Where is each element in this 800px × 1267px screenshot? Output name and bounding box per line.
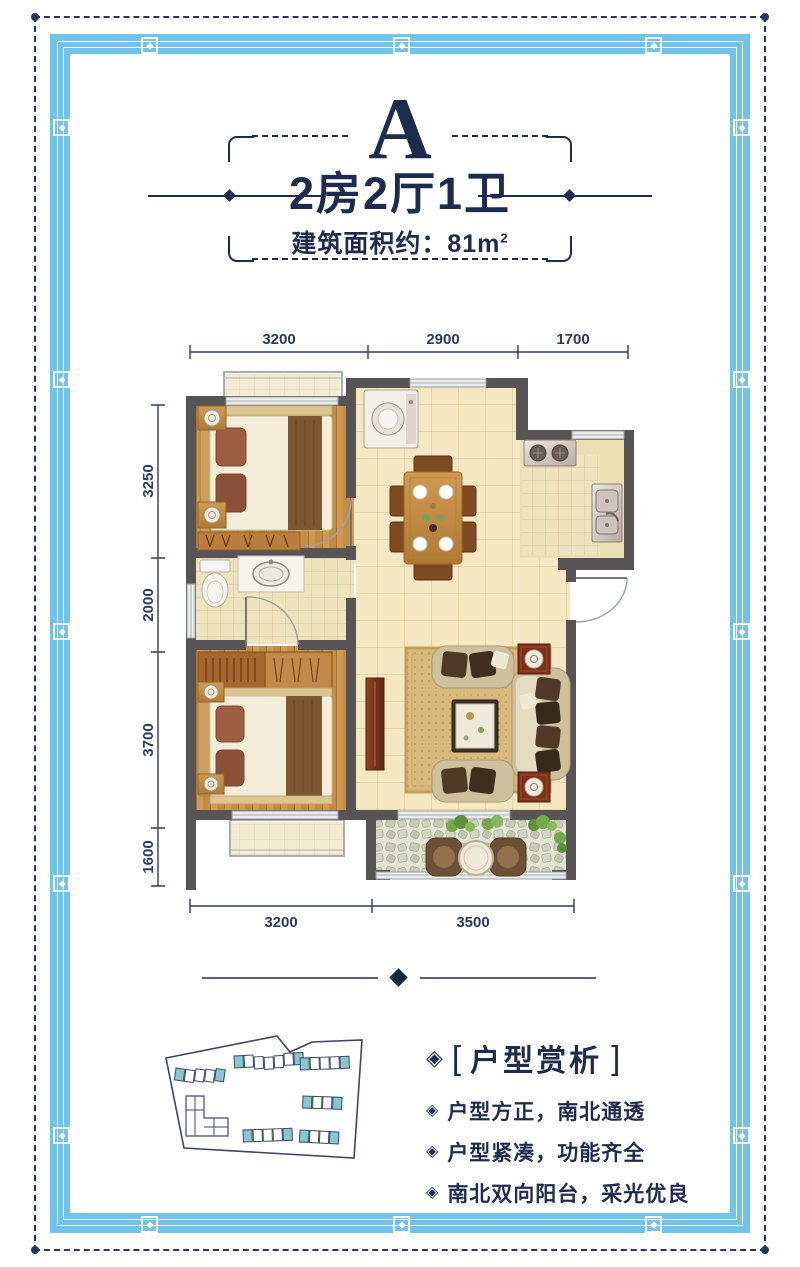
dimension-left: 3250 2000 3700 1600 [140,405,165,886]
sofa-top [432,646,514,688]
border-ornament [645,37,662,54]
plan-letter: A [0,90,800,170]
bedroom-2 [198,652,332,804]
border-ornament [53,371,70,388]
feature-text: 户型方正，南北通透 [447,1096,645,1126]
sofa-bottom [432,760,514,802]
dimension-bottom: 3200 3500 [190,899,574,931]
feature-text: 户型紧凑，功能齐全 [447,1137,645,1167]
dimension-top: 3200 2900 1700 [190,331,628,359]
coffee-table [452,700,498,752]
divider-line [420,977,596,979]
washing-machine [364,390,418,448]
wardrobe [198,532,300,550]
side-table-bottom [518,772,550,802]
feature-item: ◈ 户型方正，南北通透 [426,1096,689,1126]
diamond-bullet-icon: ◈ [426,1144,438,1160]
divider-line [202,977,378,979]
sofa-main [512,668,570,780]
features-title: 户型赏析 [470,1036,602,1080]
corner-dot [31,1246,39,1254]
svg-text:2000: 2000 [140,588,157,621]
bracket-right: ] [611,1039,620,1077]
floorplan-poster: A 2房2厅1卫 建筑面积约：81m2 [0,0,800,1267]
features-panel: ◈ [ 户型赏析 ] ◈ 户型方正，南北通透 ◈ 户型紧凑，功能齐全 ◈ 南北双… [426,1036,689,1208]
svg-text:3500: 3500 [456,914,489,931]
header-frame-corner [546,136,572,162]
svg-text:3700: 3700 [140,723,157,756]
border-ornament [733,623,750,640]
svg-text:2900: 2900 [426,331,459,348]
diamond-bullet-icon: ◈ [426,1185,438,1201]
bracket-left: [ [452,1039,461,1077]
header-frame-dash [252,135,348,137]
border-ornament [393,37,410,54]
svg-text:3250: 3250 [140,464,157,497]
plan-title: 2房2厅1卫 [0,168,800,220]
diamond-bullet-icon: ◈ [426,1103,438,1119]
features-heading: ◈ [ 户型赏析 ] [426,1036,689,1080]
svg-text:1600: 1600 [140,840,157,873]
border-ornament [733,875,750,892]
border-ornament [141,37,158,54]
border-ornament [733,1127,750,1144]
border-ornament [53,875,70,892]
corner-dot [31,13,39,21]
header-frame-dash [452,135,548,137]
feature-text: 南北双向阳台，采光优良 [447,1178,689,1208]
feature-item: ◈ 户型紧凑，功能齐全 [426,1137,689,1167]
diamond-bullet-icon: ◈ [426,1047,443,1069]
area-text: 建筑面积约：81m [291,230,500,258]
side-table-top [518,644,550,674]
header-frame-corner [228,136,254,162]
svg-text:3200: 3200 [262,331,295,348]
plan-area: 建筑面积约：81m2 [0,224,800,260]
border-ornament [645,1216,662,1233]
area-sup: 2 [500,231,508,246]
site-plan [150,1028,390,1168]
border-ornament [141,1216,158,1233]
corner-dot [761,1246,769,1254]
border-ornament [53,623,70,640]
bedroom-1 [198,406,332,550]
border-ornament [393,1216,410,1233]
feature-item: ◈ 南北双向阳台，采光优良 [426,1178,689,1208]
corner-dot [761,13,769,21]
svg-text:1700: 1700 [556,331,589,348]
svg-text:3200: 3200 [264,914,297,931]
border-ornament [733,371,750,388]
border-ornament [53,1127,70,1144]
floor-plan: 3200 2900 1700 3250 2000 3700 1600 3200 … [140,330,670,940]
